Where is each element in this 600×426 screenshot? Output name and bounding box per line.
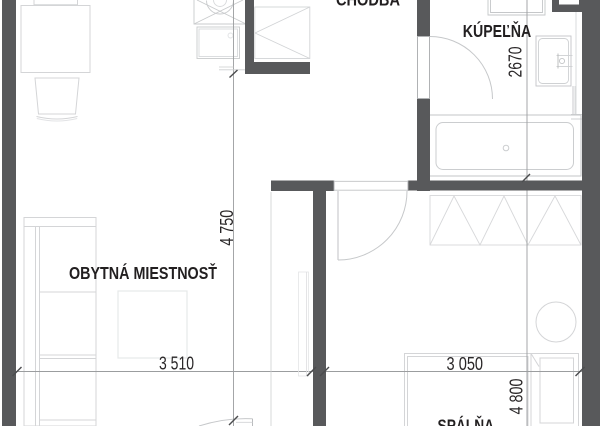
svg-text:4 800: 4 800 (506, 379, 526, 415)
svg-text:2670: 2670 (506, 47, 526, 78)
svg-text:4 750: 4 750 (217, 210, 237, 246)
svg-text:CHODBA: CHODBA (336, 0, 400, 10)
svg-text:3 510: 3 510 (159, 353, 194, 373)
svg-text:KÚPEĽŇA: KÚPEĽŇA (463, 20, 532, 41)
svg-text:3 050: 3 050 (447, 354, 484, 374)
svg-text:SPÁLŇA: SPÁLŇA (438, 414, 495, 426)
svg-text:OBYTNÁ MIESTNOSŤ: OBYTNÁ MIESTNOSŤ (69, 262, 217, 283)
